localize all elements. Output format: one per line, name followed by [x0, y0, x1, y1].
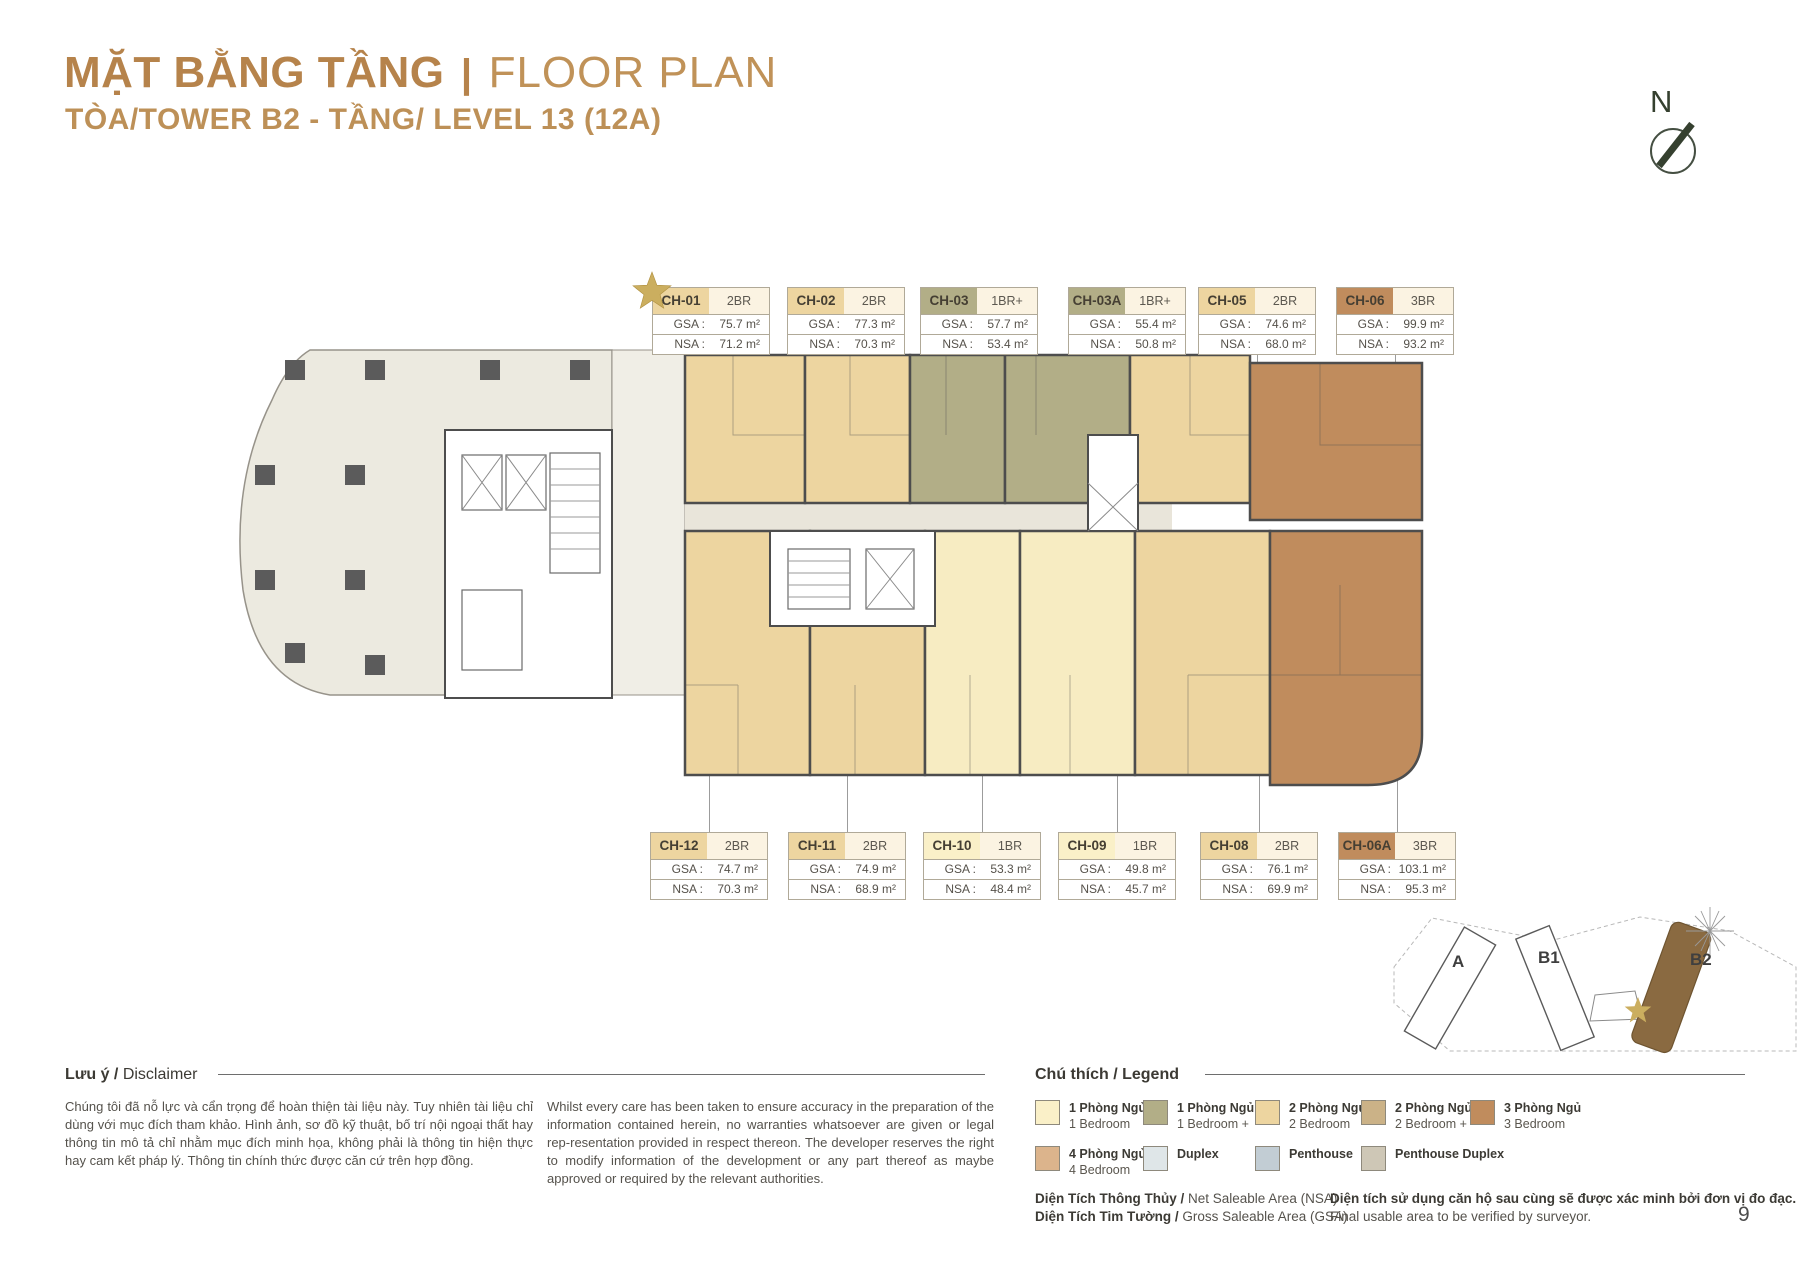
unit-card-ch-09: CH-091BRGSA :49.8 m²NSA :45.7 m² [1058, 832, 1176, 900]
nsa-row: NSA :50.8 m² [1069, 334, 1185, 354]
legend-rule [1205, 1074, 1745, 1075]
north-compass-icon: N [1628, 74, 1728, 184]
unit-type: 3BR [1395, 833, 1455, 859]
page-title: MẶT BẰNG TẦNG | FLOOR PLAN [64, 48, 777, 98]
unit-type: 1BR [980, 833, 1040, 859]
legend-swatch [1143, 1100, 1168, 1125]
unit-card-header: CH-052BR [1199, 288, 1315, 314]
nsa-row: NSA :70.3 m² [651, 879, 767, 899]
unit-type: 1BR+ [977, 288, 1037, 314]
gsa-label: GSA : [924, 860, 976, 879]
unit-id: CH-06 [1337, 288, 1393, 314]
unit-card-header: CH-112BR [789, 833, 905, 859]
gsa-row: GSA :53.3 m² [924, 859, 1040, 879]
nsa-label: NSA : [788, 335, 840, 354]
floor-plan [230, 335, 1430, 790]
nsa-row: NSA :69.9 m² [1201, 879, 1317, 899]
nsa-label: NSA : [789, 880, 841, 899]
site-locator-map: A B1 B2 [1390, 903, 1800, 1061]
gsa-label: GSA : [921, 315, 973, 334]
plan-unit-ch10 [925, 531, 1020, 775]
tower-level-subtitle: TÒA/TOWER B2 - TẦNG/ LEVEL 13 (12A) [65, 103, 661, 137]
gsa-value: 49.8 m² [1111, 860, 1175, 879]
legend-item: 1 Phòng Ngủ +1 Bedroom + [1143, 1100, 1265, 1132]
minimap-tower-b1 [1516, 926, 1594, 1051]
legend-heading: Chú thích / Legend [1035, 1066, 1179, 1084]
area-definitions: Diện Tích Thông Thủy / Net Saleable Area… [1035, 1190, 1347, 1226]
unit-card-header: CH-063BR [1337, 288, 1453, 314]
gsa-value: 77.3 m² [840, 315, 904, 334]
unit-type: 2BR [845, 833, 905, 859]
nsa-label: NSA : [924, 880, 976, 899]
disclaimer-heading-en: Disclaimer [118, 1066, 197, 1083]
gsa-row: GSA :74.6 m² [1199, 314, 1315, 334]
unit-id: CH-10 [924, 833, 980, 859]
unit-card-ch-12: CH-122BRGSA :74.7 m²NSA :70.3 m² [650, 832, 768, 900]
page-number: 9 [1738, 1203, 1750, 1227]
unit-card-ch-06: CH-063BRGSA :99.9 m²NSA :93.2 m² [1336, 287, 1454, 355]
legend-label-vi: Penthouse [1289, 1147, 1353, 1163]
disclaimer-text-vietnamese: Chúng tôi đã nỗ lực và cẩn trọng để hoàn… [65, 1098, 533, 1170]
legend-item: 3 Phòng Ngủ3 Bedroom [1470, 1100, 1581, 1132]
gsa-label: GSA : [1059, 860, 1111, 879]
brochure-page: { "header": { "title_bold": "MẶT BẰNG TẦ… [0, 0, 1800, 1272]
legend-item: Penthouse Duplex [1361, 1146, 1504, 1171]
nsa-label: NSA : [1059, 880, 1111, 899]
unit-card-header: CH-06A3BR [1339, 833, 1455, 859]
nsa-row: NSA :95.3 m² [1339, 879, 1455, 899]
gsa-row: GSA :75.7 m² [653, 314, 769, 334]
entry-circulation [612, 350, 685, 695]
gsa-label: GSA : [1337, 315, 1389, 334]
minimap-tower-a [1404, 927, 1495, 1049]
nsa-value: 71.2 m² [705, 335, 769, 354]
nsa-value: 45.7 m² [1111, 880, 1175, 899]
unit-card-ch-02: CH-022BRGSA :77.3 m²NSA :70.3 m² [787, 287, 905, 355]
nsa-label: NSA : [1201, 880, 1253, 899]
gsa-label: GSA : [1339, 860, 1391, 879]
legend-item: 1 Phòng Ngủ1 Bedroom [1035, 1100, 1146, 1132]
unit-type: 2BR [1255, 288, 1315, 314]
unit-id: CH-11 [789, 833, 845, 859]
unit-card-ch-10: CH-101BRGSA :53.3 m²NSA :48.4 m² [923, 832, 1041, 900]
gsa-label: GSA : [789, 860, 841, 879]
nsa-value: 95.3 m² [1391, 880, 1455, 899]
unit-card-ch-06a: CH-06A3BRGSA :103.1 m²NSA :95.3 m² [1338, 832, 1456, 900]
unit-card-ch-11: CH-112BRGSA :74.9 m²NSA :68.9 m² [788, 832, 906, 900]
legend-label-vi: 3 Phòng Ngủ [1504, 1101, 1581, 1117]
disclaimer-heading-vi: Lưu ý / [65, 1066, 118, 1083]
title-separator: | [461, 52, 472, 96]
gsa-value: 74.7 m² [703, 860, 767, 879]
disclaimer-text-english: Whilst every care has been taken to ensu… [547, 1098, 994, 1188]
nsa-value: 53.4 m² [973, 335, 1037, 354]
unit-card-header: CH-022BR [788, 288, 904, 314]
unit-type: 1BR+ [1125, 288, 1185, 314]
gsa-label: GSA : [788, 315, 840, 334]
minimap-label-b2: B2 [1690, 950, 1712, 969]
legend-swatch [1143, 1146, 1168, 1171]
compass-north-label: N [1650, 84, 1672, 119]
nsa-label: NSA : [1339, 880, 1391, 899]
unit-card-ch-03: CH-031BR+GSA :57.7 m²NSA :53.4 m² [920, 287, 1038, 355]
legend-label-vi: 4 Phòng Ngủ [1069, 1147, 1146, 1163]
nsa-label: NSA : [653, 335, 705, 354]
gsa-row: GSA :57.7 m² [921, 314, 1037, 334]
legend-swatch [1255, 1146, 1280, 1171]
plan-unit-ch06 [1250, 363, 1422, 520]
nsa-row: NSA :53.4 m² [921, 334, 1037, 354]
unit-id: CH-03A [1069, 288, 1125, 314]
unit-id: CH-09 [1059, 833, 1115, 859]
gsa-value: 74.6 m² [1251, 315, 1315, 334]
gsa-label: GSA : [653, 315, 705, 334]
legend-swatch [1361, 1100, 1386, 1125]
legend-label-en: 3 Bedroom [1504, 1117, 1581, 1133]
nsa-value: 68.9 m² [841, 880, 905, 899]
unit-card-ch-05: CH-052BRGSA :74.6 m²NSA :68.0 m² [1198, 287, 1316, 355]
unit-card-ch-03a: CH-03A1BR+GSA :55.4 m²NSA :50.8 m² [1068, 287, 1186, 355]
unit-card-header: CH-031BR+ [921, 288, 1037, 314]
unit-id: CH-05 [1199, 288, 1255, 314]
unit-card-header: CH-101BR [924, 833, 1040, 859]
plan-unit-ch06a [1270, 531, 1422, 785]
legend-item: Duplex [1143, 1146, 1219, 1171]
nsa-label: NSA : [651, 880, 703, 899]
nsa-row: NSA :45.7 m² [1059, 879, 1175, 899]
gsa-value: 55.4 m² [1121, 315, 1185, 334]
legend-item: 2 Phòng Ngủ2 Bedroom [1255, 1100, 1366, 1132]
legend-label-en: 4 Bedroom [1069, 1163, 1146, 1179]
legend-item: Penthouse [1255, 1146, 1353, 1171]
unit-type: 2BR [707, 833, 767, 859]
gsa-label: GSA : [1201, 860, 1253, 879]
nsa-row: NSA :68.0 m² [1199, 334, 1315, 354]
legend-label-vi: Duplex [1177, 1147, 1219, 1163]
unit-id: CH-06A [1339, 833, 1395, 859]
legend-swatch [1361, 1146, 1386, 1171]
unit-type: 2BR [844, 288, 904, 314]
title-vietnamese: MẶT BẰNG TẦNG [64, 48, 444, 97]
unit-card-header: CH-082BR [1201, 833, 1317, 859]
nsa-value: 68.0 m² [1251, 335, 1315, 354]
unit-card-header: CH-03A1BR+ [1069, 288, 1185, 314]
legend-label-vi: 2 Phòng Ngủ [1289, 1101, 1366, 1117]
unit-id: CH-12 [651, 833, 707, 859]
unit-card-ch-08: CH-082BRGSA :76.1 m²NSA :69.9 m² [1200, 832, 1318, 900]
gsa-row: GSA :99.9 m² [1337, 314, 1453, 334]
gsa-value: 57.7 m² [973, 315, 1037, 334]
nsa-row: NSA :71.2 m² [653, 334, 769, 354]
gsa-row: GSA :55.4 m² [1069, 314, 1185, 334]
nsa-row: NSA :68.9 m² [789, 879, 905, 899]
legend-swatch [1470, 1100, 1495, 1125]
gsa-value: 74.9 m² [841, 860, 905, 879]
minimap-label-b1: B1 [1538, 948, 1560, 967]
legend-swatch [1035, 1146, 1060, 1171]
nsa-label: NSA : [1199, 335, 1251, 354]
gsa-value: 53.3 m² [976, 860, 1040, 879]
plan-unit-ch08 [1135, 531, 1270, 775]
surveyor-note: Diện tích sử dụng căn hộ sau cùng sẽ đượ… [1330, 1190, 1796, 1226]
legend-swatch [1255, 1100, 1280, 1125]
highlight-star-icon [629, 269, 675, 315]
disclaimer-heading: Lưu ý / Disclaimer [65, 1066, 198, 1084]
disclaimer-rule [218, 1074, 985, 1075]
gsa-value: 75.7 m² [705, 315, 769, 334]
legend-item: 2 Phòng Ngủ +2 Bedroom + [1361, 1100, 1483, 1132]
unit-id: CH-08 [1201, 833, 1257, 859]
nsa-row: NSA :70.3 m² [788, 334, 904, 354]
plan-unit-ch01 [685, 355, 805, 503]
nsa-value: 70.3 m² [840, 335, 904, 354]
title-english: FLOOR PLAN [489, 48, 778, 97]
gsa-row: GSA :74.7 m² [651, 859, 767, 879]
unit-id: CH-02 [788, 288, 844, 314]
legend-swatch [1035, 1100, 1060, 1125]
gsa-row: GSA :76.1 m² [1201, 859, 1317, 879]
gsa-value: 76.1 m² [1253, 860, 1317, 879]
legend-label-vi: 1 Phòng Ngủ + [1177, 1101, 1265, 1117]
gsa-label: GSA : [1199, 315, 1251, 334]
unit-type: 2BR [1257, 833, 1317, 859]
nsa-value: 48.4 m² [976, 880, 1040, 899]
plan-unit-ch09 [1020, 531, 1135, 775]
unit-id: CH-03 [921, 288, 977, 314]
legend-label-vi: 1 Phòng Ngủ [1069, 1101, 1146, 1117]
nsa-value: 93.2 m² [1389, 335, 1453, 354]
nsa-row: NSA :93.2 m² [1337, 334, 1453, 354]
nsa-value: 70.3 m² [703, 880, 767, 899]
minimap-label-a: A [1452, 952, 1464, 971]
gsa-value: 103.1 m² [1391, 860, 1455, 879]
plan-unit-ch02 [805, 355, 910, 503]
plan-unit-ch03 [910, 355, 1005, 503]
gsa-label: GSA : [1069, 315, 1121, 334]
nsa-value: 50.8 m² [1121, 335, 1185, 354]
gsa-row: GSA :49.8 m² [1059, 859, 1175, 879]
nsa-label: NSA : [1337, 335, 1389, 354]
unit-type: 2BR [709, 288, 769, 314]
legend-label-en: 1 Bedroom + [1177, 1117, 1265, 1133]
gsa-row: GSA :74.9 m² [789, 859, 905, 879]
unit-card-header: CH-091BR [1059, 833, 1175, 859]
legend-label-en: 1 Bedroom [1069, 1117, 1146, 1133]
unit-card-header: CH-122BR [651, 833, 767, 859]
legend-label-vi: Penthouse Duplex [1395, 1147, 1504, 1163]
nsa-row: NSA :48.4 m² [924, 879, 1040, 899]
gsa-row: GSA :103.1 m² [1339, 859, 1455, 879]
nsa-label: NSA : [921, 335, 973, 354]
legend-item: 4 Phòng Ngủ4 Bedroom [1035, 1146, 1146, 1178]
gsa-row: GSA :77.3 m² [788, 314, 904, 334]
nsa-label: NSA : [1069, 335, 1121, 354]
nsa-value: 69.9 m² [1253, 880, 1317, 899]
gsa-value: 99.9 m² [1389, 315, 1453, 334]
unit-type: 3BR [1393, 288, 1453, 314]
units-top-row [685, 355, 1422, 520]
unit-type: 1BR [1115, 833, 1175, 859]
gsa-label: GSA : [651, 860, 703, 879]
legend-label-en: 2 Bedroom [1289, 1117, 1366, 1133]
